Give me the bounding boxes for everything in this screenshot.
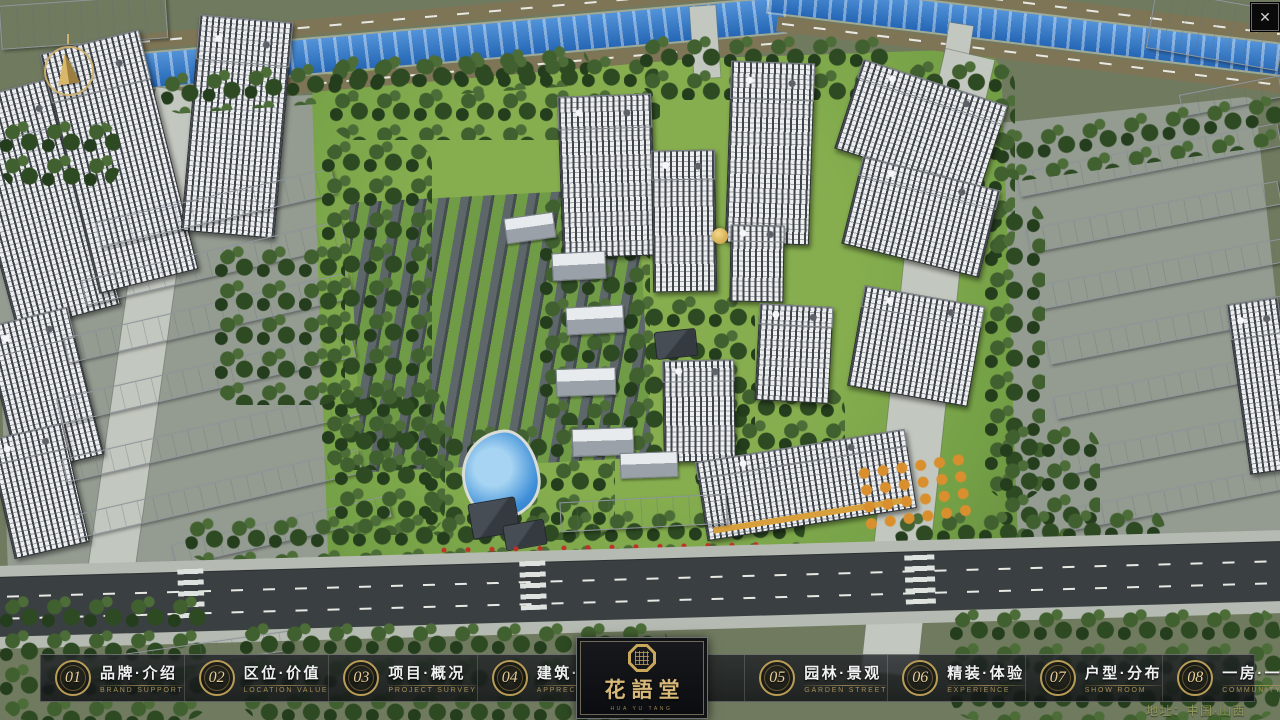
nav-label-zh: 精装·体验 [947, 662, 1025, 683]
brand-title: 花語堂 [599, 674, 686, 704]
nav-label-en: PROJECT SURVEY [388, 687, 476, 694]
nav-label-zh: 品牌·介绍 [100, 662, 184, 683]
residential-tower [662, 359, 736, 462]
crosswalk [519, 556, 547, 611]
residential-tower [557, 93, 657, 258]
nav-label-zh: 园林·景观 [804, 662, 887, 683]
compass-icon [40, 34, 96, 96]
nav-label-en: COMMUNITY [1222, 687, 1280, 694]
nav-number-badge: 08 [1177, 660, 1213, 696]
nav-label-en: BRAND SUPPORT [100, 687, 184, 694]
tree-cluster [0, 120, 120, 190]
nav-item-interior-experience[interactable]: 06 精装·体验EXPERIENCE [887, 655, 1025, 701]
nav-label-en: SHOW ROOM [1085, 687, 1163, 694]
brand-logo-panel: 花語堂 HUA YU TANG [576, 637, 708, 719]
nav-item-garden-landscape[interactable]: 05 园林·景观GARDEN STREET [744, 655, 887, 701]
tree-cluster [215, 245, 345, 405]
nav-item-location-value[interactable]: 02 区位·价值LOCATION VALUE [184, 655, 329, 701]
residential-tower [755, 303, 834, 404]
close-icon: ✕ [1259, 9, 1271, 25]
midrise-building [620, 451, 679, 479]
midrise-building [551, 251, 606, 282]
nav-item-room-view[interactable]: 08 一房·一景COMMUNITY [1162, 655, 1280, 701]
crosswalk [904, 549, 936, 604]
nav-label-en: EXPERIENCE [947, 687, 1025, 694]
nav-number-badge: 03 [343, 660, 379, 696]
nav-item-brand-intro[interactable]: 01 品牌·介绍BRAND SUPPORT [40, 655, 184, 701]
nav-label-en: LOCATION VALUE [244, 687, 329, 694]
residential-tower [725, 61, 815, 246]
nav-number-badge: 06 [902, 660, 938, 696]
project-address: 地址：中国·山西 [1146, 702, 1246, 719]
midrise-building [556, 367, 617, 397]
nav-label-zh: 户型·分布 [1085, 662, 1163, 683]
nav-label-zh: 一房·一景 [1222, 662, 1280, 683]
residential-tower [729, 225, 784, 303]
nav-label-en: GARDEN STREET [804, 687, 887, 694]
nav-item-floorplan-distribution[interactable]: 07 户型·分布SHOW ROOM [1025, 655, 1163, 701]
gatehouse-roof [654, 328, 699, 360]
residential-tower [651, 149, 717, 292]
nav-number-badge: 05 [759, 660, 795, 696]
residential-tower [847, 285, 985, 407]
nav-number-badge: 01 [55, 660, 91, 696]
nav-number-badge: 04 [492, 660, 528, 696]
nav-label-zh: 区位·价值 [244, 662, 329, 683]
masterplan-scene [0, 0, 1280, 720]
nav-label-zh: 项目·概况 [388, 662, 476, 683]
landmark-feature [712, 228, 728, 244]
nav-number-badge: 07 [1040, 660, 1076, 696]
close-button[interactable]: ✕ [1251, 3, 1279, 31]
presentation-app: ✕ 01 品牌·介绍BRAND SUPPORT 02 区位·价值LOCATION… [0, 0, 1280, 720]
nav-item-project-survey[interactable]: 03 项目·概况PROJECT SURVEY [328, 655, 476, 701]
brand-subtitle: HUA YU TANG [611, 706, 673, 711]
midrise-building [565, 305, 624, 336]
brand-seal-icon [628, 644, 656, 672]
nav-number-badge: 02 [199, 660, 235, 696]
